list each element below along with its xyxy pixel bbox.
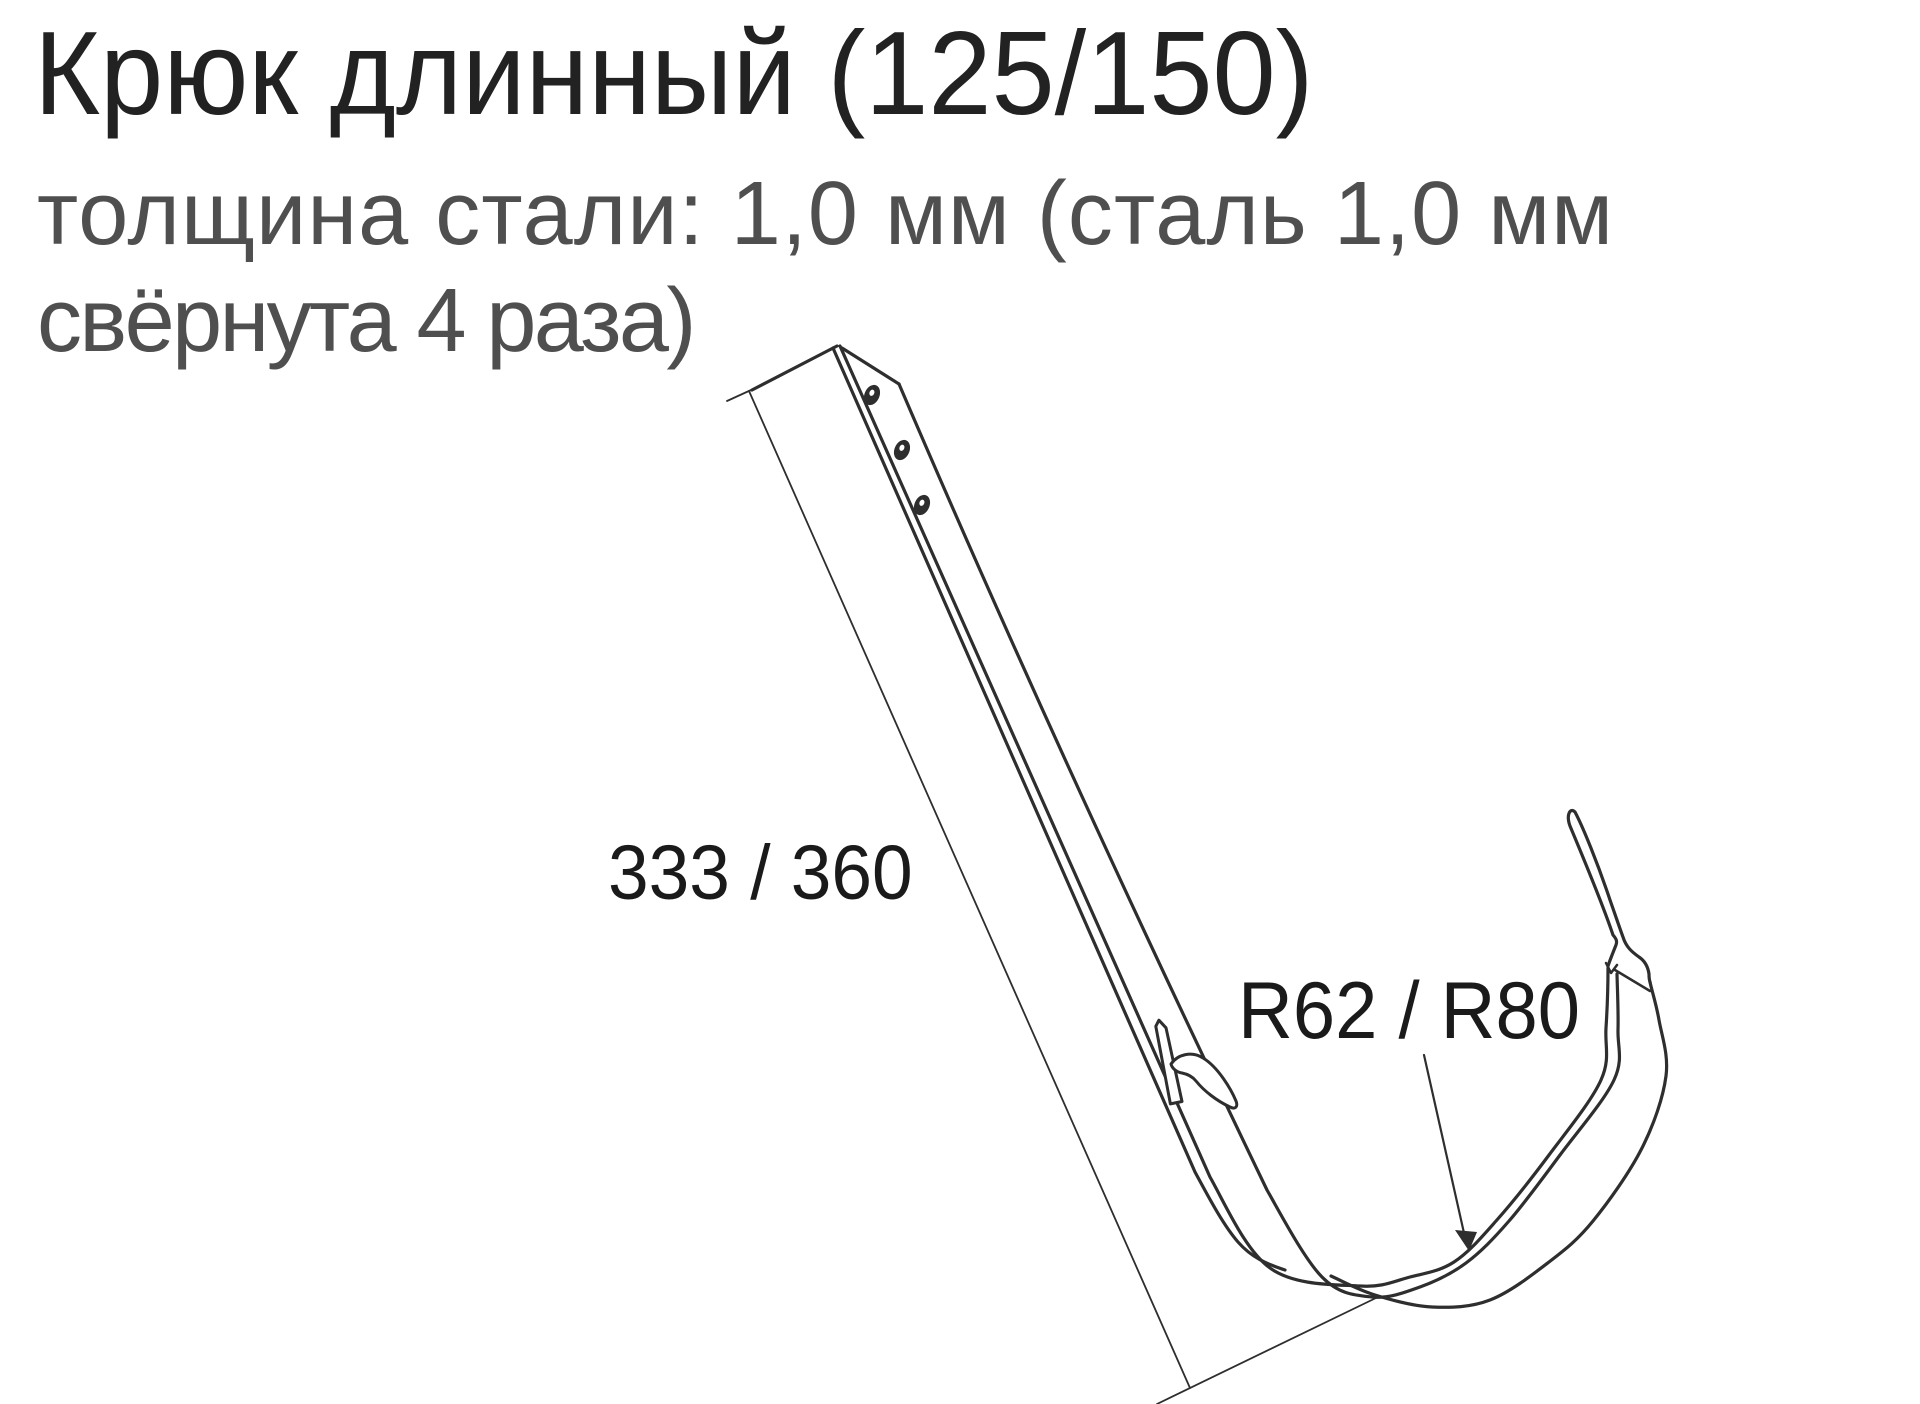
svg-text:333 / 360: 333 / 360 — [608, 829, 913, 915]
svg-text:R62 / R80: R62 / R80 — [1238, 965, 1580, 1056]
